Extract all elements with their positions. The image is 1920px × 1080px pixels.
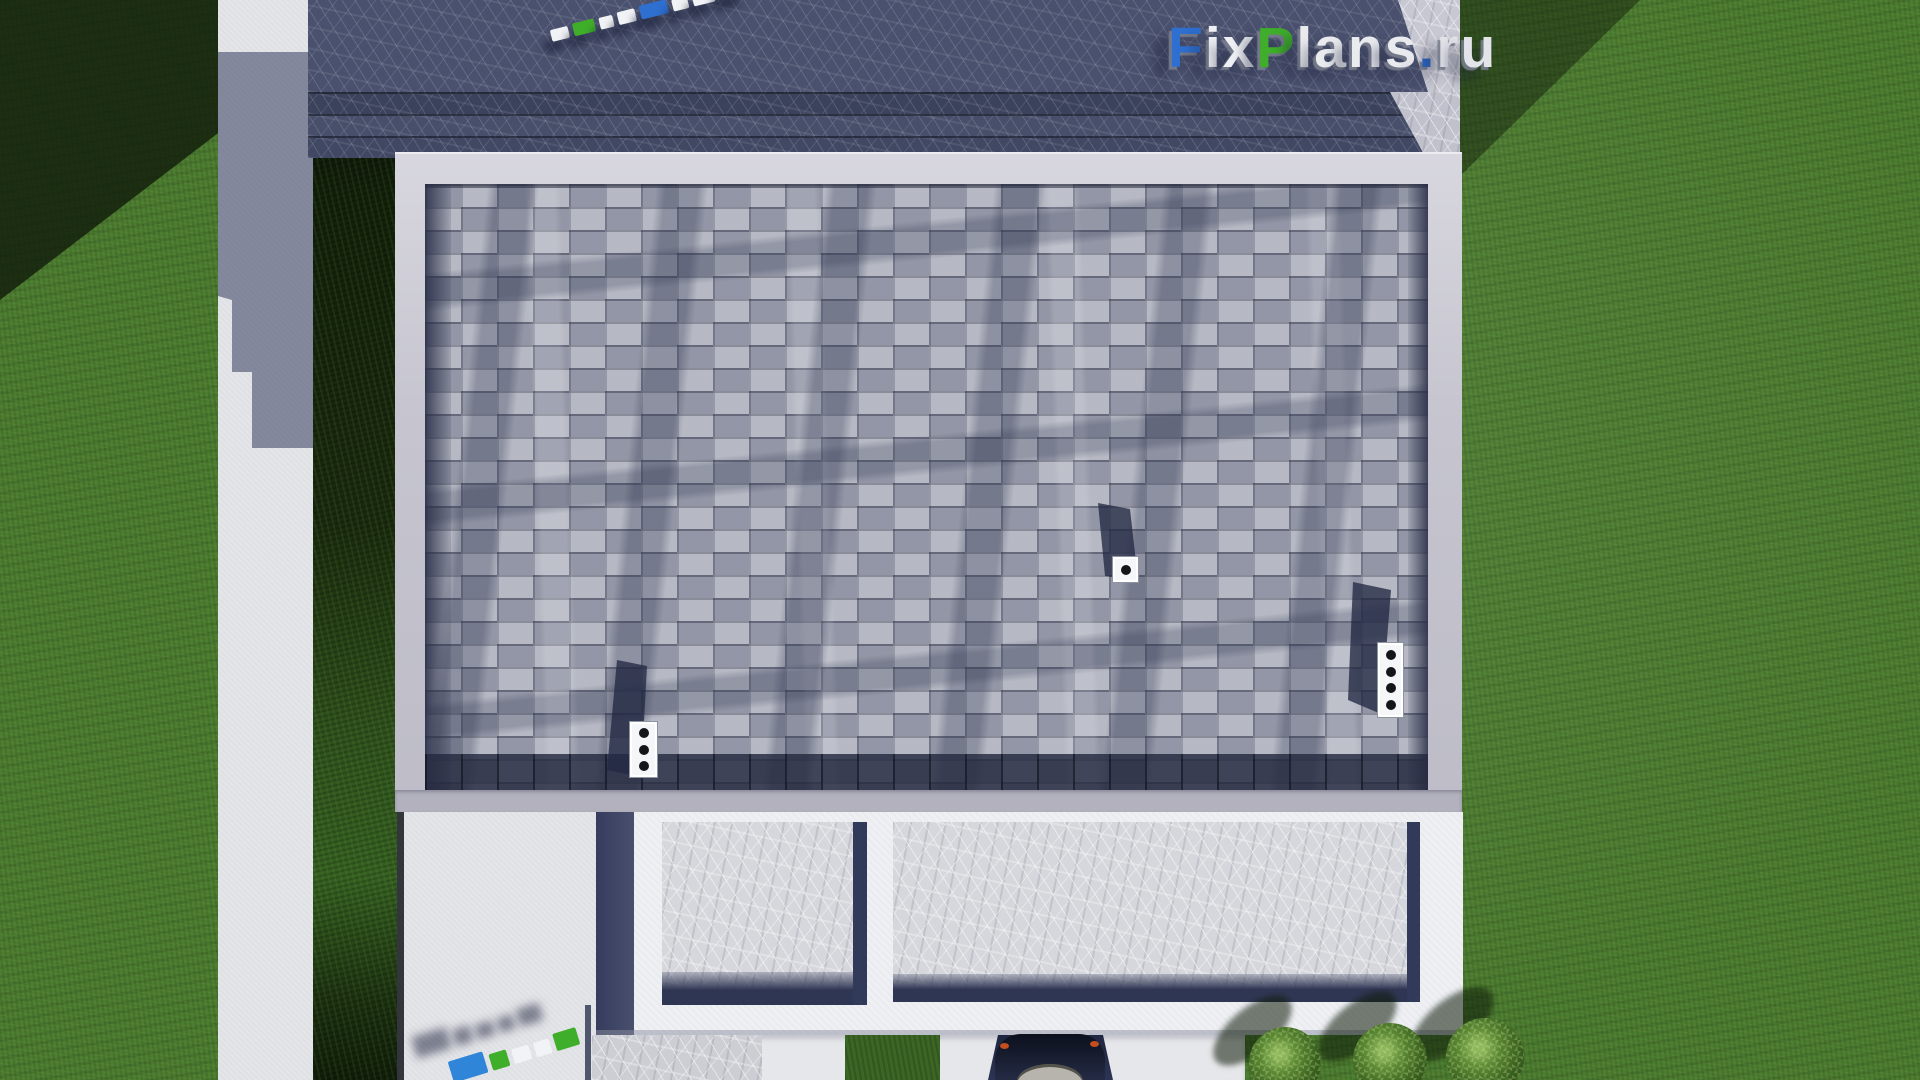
- stair-step: [308, 114, 1460, 136]
- wall-shadow-line: [585, 1005, 591, 1080]
- watermark-letter: F: [1168, 16, 1205, 80]
- hedge-texture: [313, 67, 397, 1080]
- watermark-letter: x: [1223, 16, 1257, 80]
- vent-hole: [1386, 700, 1396, 710]
- roof-edge-top: [425, 184, 1428, 188]
- roof-edge-left: [425, 184, 451, 790]
- watermark-letter: s: [1385, 16, 1419, 80]
- terrace: [596, 812, 1463, 1035]
- hedge-gap-shadow: [397, 812, 404, 1080]
- driveway-marble-patch: [592, 1035, 762, 1080]
- grass-patch: [845, 1035, 940, 1080]
- scene: FixPlans.ru: [0, 0, 1920, 1080]
- vent-hole: [639, 745, 649, 755]
- stair-step: [308, 92, 1460, 114]
- watermark-letter: n: [1348, 16, 1385, 80]
- watermark-letter: i: [1205, 16, 1223, 80]
- roof-eave-band: [395, 790, 1462, 812]
- patio-divider-shadow: [853, 822, 867, 1005]
- patio-right-edge-shadow: [1407, 822, 1420, 1002]
- vent-hole: [639, 728, 649, 738]
- roof-vent-center: [1113, 557, 1138, 582]
- watermark-letter: r: [1436, 16, 1460, 80]
- patio-left-shadow: [662, 972, 853, 1005]
- watermark-letter: P: [1256, 16, 1296, 80]
- terrace-shadow-strip: [596, 812, 634, 1035]
- car-windshield: [1017, 1064, 1083, 1080]
- roof-vent-left: [630, 722, 657, 777]
- watermark-letter: .: [1418, 16, 1436, 80]
- watermark-letter: a: [1314, 16, 1348, 80]
- vent-hole: [1121, 565, 1131, 575]
- fixplans-watermark: FixPlans.ru: [1168, 20, 1497, 77]
- patio-right-shadow: [893, 974, 1420, 1002]
- vent-hole: [1386, 650, 1396, 660]
- watermark-letter: u: [1461, 16, 1498, 80]
- roof-edge-bottom: [425, 754, 1428, 790]
- car: [995, 1034, 1105, 1080]
- roof-edge-right: [1408, 184, 1428, 790]
- watermark-letter: l: [1296, 16, 1314, 80]
- car-light: [1000, 1043, 1009, 1049]
- roof: [395, 152, 1462, 812]
- stairs: [308, 92, 1460, 158]
- car-light: [1090, 1041, 1099, 1047]
- vent-hole: [639, 761, 649, 771]
- roof-vent-right: [1378, 643, 1403, 717]
- vent-hole: [1386, 683, 1396, 693]
- vent-hole: [1386, 667, 1396, 677]
- roof-shingle-field: [425, 184, 1428, 790]
